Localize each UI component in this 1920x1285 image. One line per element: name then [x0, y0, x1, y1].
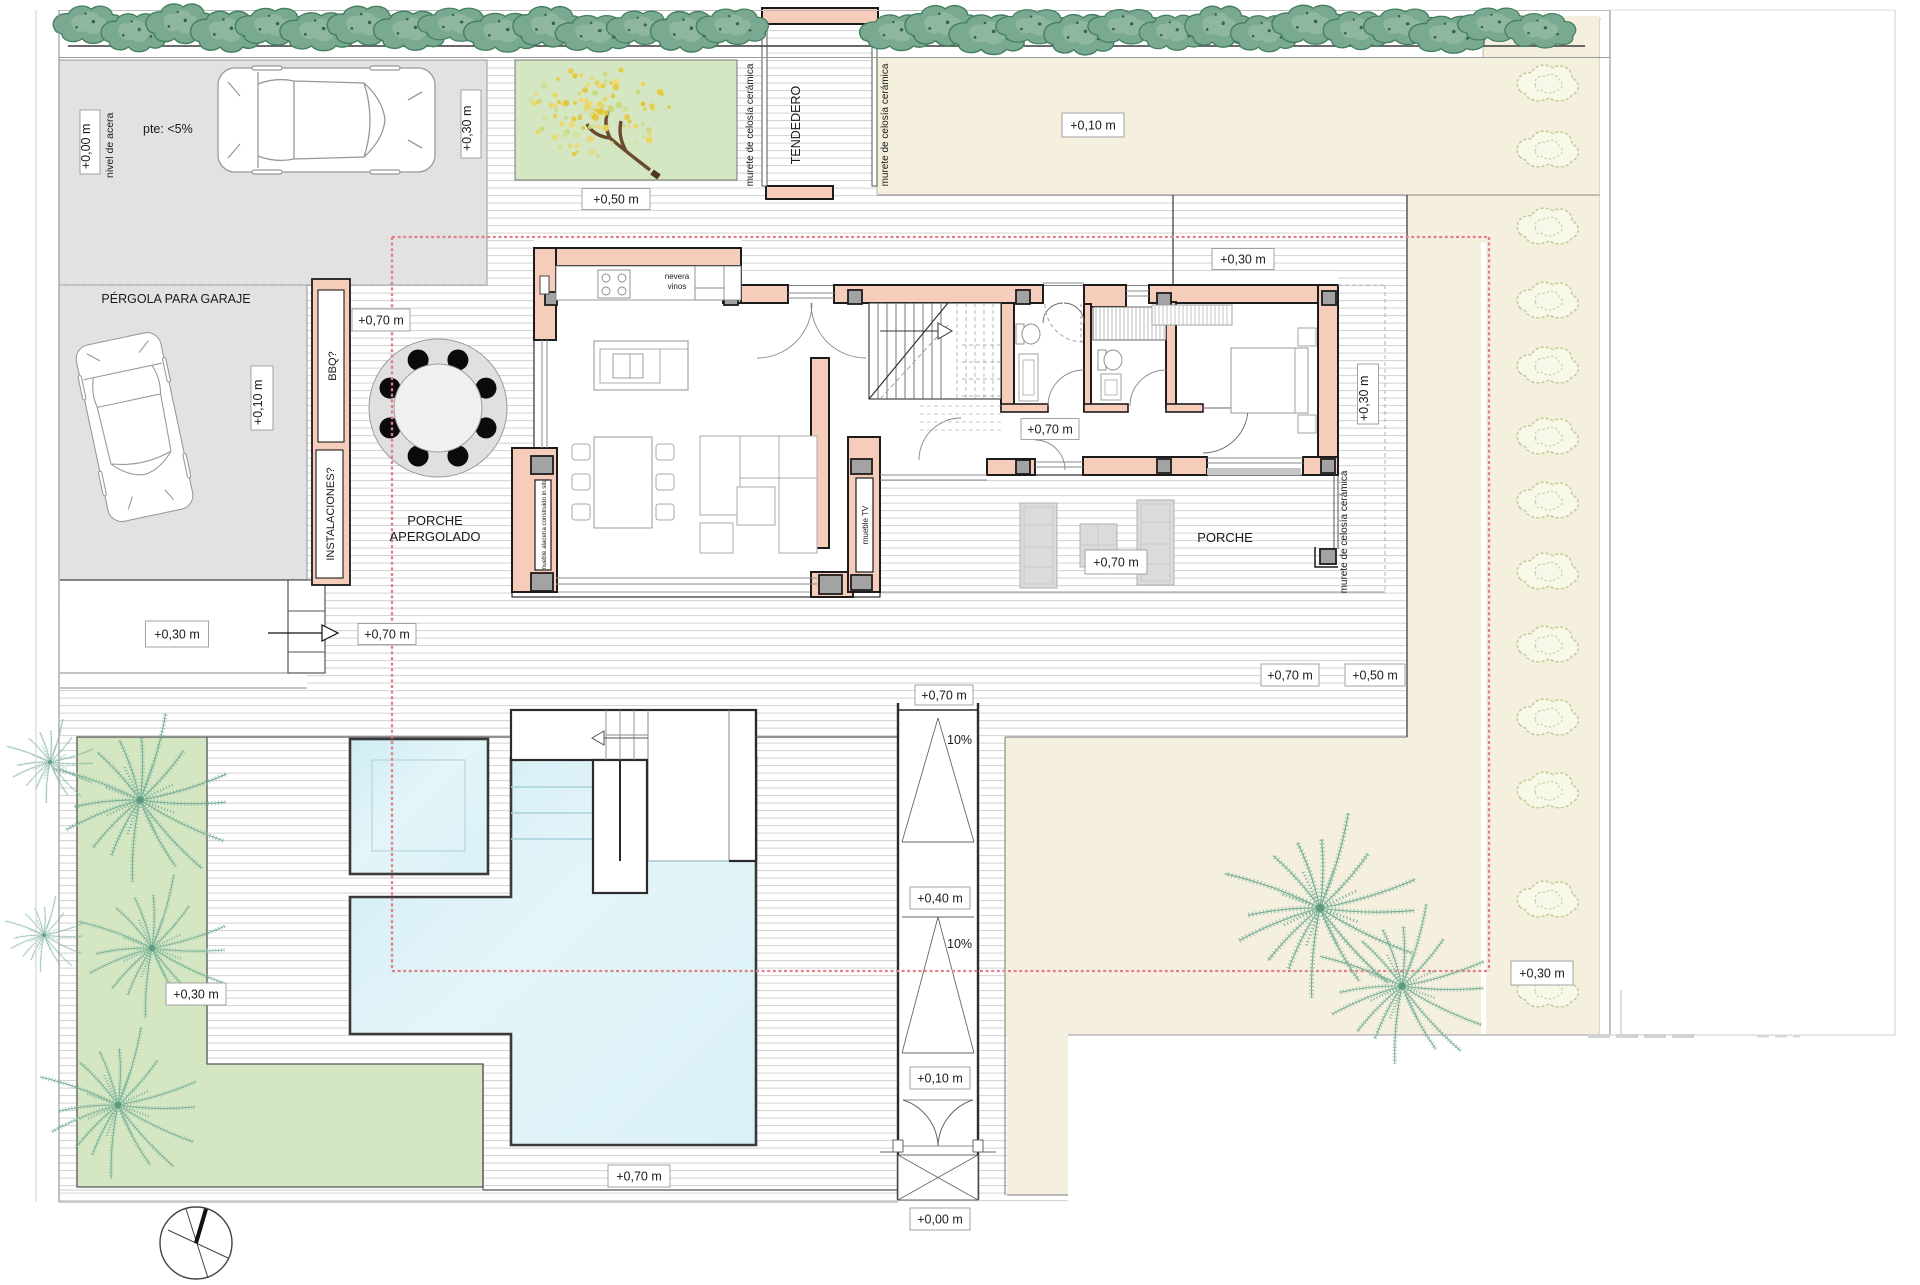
svg-text:+0,50 m: +0,50 m — [1352, 668, 1398, 682]
svg-text:PORCHE: PORCHE — [407, 513, 463, 528]
svg-text:+0,10 m: +0,10 m — [1070, 118, 1116, 132]
svg-text:10%: 10% — [947, 733, 972, 747]
svg-text:+0,70 m: +0,70 m — [1093, 555, 1139, 569]
svg-text:+0,70 m: +0,70 m — [616, 1169, 662, 1183]
svg-text:+0,30 m: +0,30 m — [460, 106, 474, 152]
svg-text:PORCHE: PORCHE — [1197, 530, 1253, 545]
svg-text:murete de celosía cerámica: murete de celosía cerámica — [1339, 470, 1350, 593]
svg-text:+0,70 m: +0,70 m — [1267, 668, 1313, 682]
svg-text:+0,70 m: +0,70 m — [358, 313, 404, 327]
svg-text:+0,10 m: +0,10 m — [251, 380, 265, 426]
svg-text:+0,00 m: +0,00 m — [917, 1212, 963, 1226]
svg-text:mueble TV: mueble TV — [861, 505, 870, 544]
svg-text:pte: <5%: pte: <5% — [143, 122, 193, 136]
svg-text:+0,30 m: +0,30 m — [173, 987, 219, 1001]
svg-text:APERGOLADO: APERGOLADO — [389, 529, 480, 544]
svg-text:10%: 10% — [947, 937, 972, 951]
svg-text:+0,70 m: +0,70 m — [364, 627, 410, 641]
svg-text:INSTALACIONES?: INSTALACIONES? — [325, 467, 337, 560]
svg-text:BBQ?: BBQ? — [327, 351, 339, 380]
svg-text:+0,30 m: +0,30 m — [1357, 376, 1371, 422]
svg-text:+0,30 m: +0,30 m — [154, 627, 200, 641]
svg-text:vinos: vinos — [668, 282, 687, 291]
svg-text:mueble alacena construido in s: mueble alacena construido in situ — [541, 479, 548, 571]
svg-text:+0,30 m: +0,30 m — [1519, 966, 1565, 980]
svg-text:+0,10 m: +0,10 m — [917, 1071, 963, 1085]
svg-text:nivel de acera: nivel de acera — [104, 112, 116, 178]
svg-text:murete de celosía cerámica: murete de celosía cerámica — [880, 63, 891, 186]
svg-text:+0,30 m: +0,30 m — [1220, 252, 1266, 266]
svg-text:+0,70 m: +0,70 m — [921, 688, 967, 702]
svg-text:+0,50 m: +0,50 m — [593, 192, 639, 206]
svg-text:+0,70 m: +0,70 m — [1027, 422, 1073, 436]
svg-text:+0,40 m: +0,40 m — [917, 891, 963, 905]
svg-text:murete de celosía cerámica: murete de celosía cerámica — [745, 63, 756, 186]
svg-text:TENDEDERO: TENDEDERO — [789, 85, 803, 164]
svg-text:PÉRGOLA PARA GARAJE: PÉRGOLA PARA GARAJE — [101, 291, 250, 306]
svg-text:nevera: nevera — [665, 272, 690, 281]
svg-text:+0,00 m: +0,00 m — [79, 124, 93, 170]
